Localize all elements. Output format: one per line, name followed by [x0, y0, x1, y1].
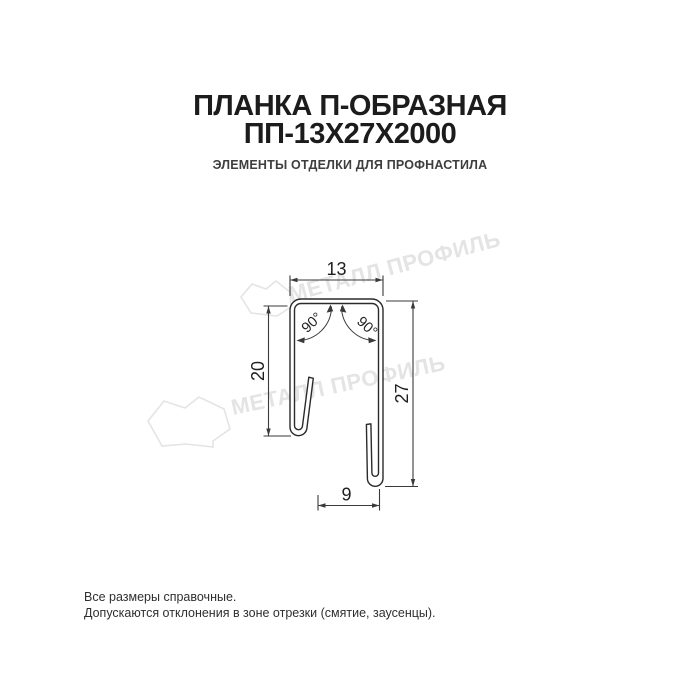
watermark-text: МЕТАЛЛ ПРОФИЛЬ: [229, 350, 448, 420]
mp-logo-cloud-icon: [241, 281, 291, 316]
angle-label-left: 90°: [299, 310, 326, 337]
mp-logo-cloud-icon: [148, 397, 230, 447]
dim-label-left-height: 20: [248, 361, 268, 381]
footer-line-1: Все размеры справочные.: [84, 590, 436, 606]
angle-label-right: 90°: [353, 314, 380, 341]
dim-label-top-width: 13: [326, 259, 346, 279]
dimension-bottom-width: 9: [318, 485, 380, 511]
dim-label-right-height: 27: [392, 383, 412, 403]
dimension-left-height: 20: [248, 306, 291, 436]
dimension-right-height: 27: [385, 301, 418, 487]
dim-label-bottom-width: 9: [341, 485, 351, 505]
footer-note: Все размеры справочные. Допускаются откл…: [84, 590, 436, 621]
footer-line-2: Допускаются отклонения в зоне отрезки (с…: [84, 606, 436, 622]
watermark-text: МЕТАЛЛ ПРОФИЛЬ: [286, 226, 503, 307]
angle-annotation-left: 90°: [297, 305, 334, 344]
angle-annotation-right: 90°: [340, 305, 380, 344]
